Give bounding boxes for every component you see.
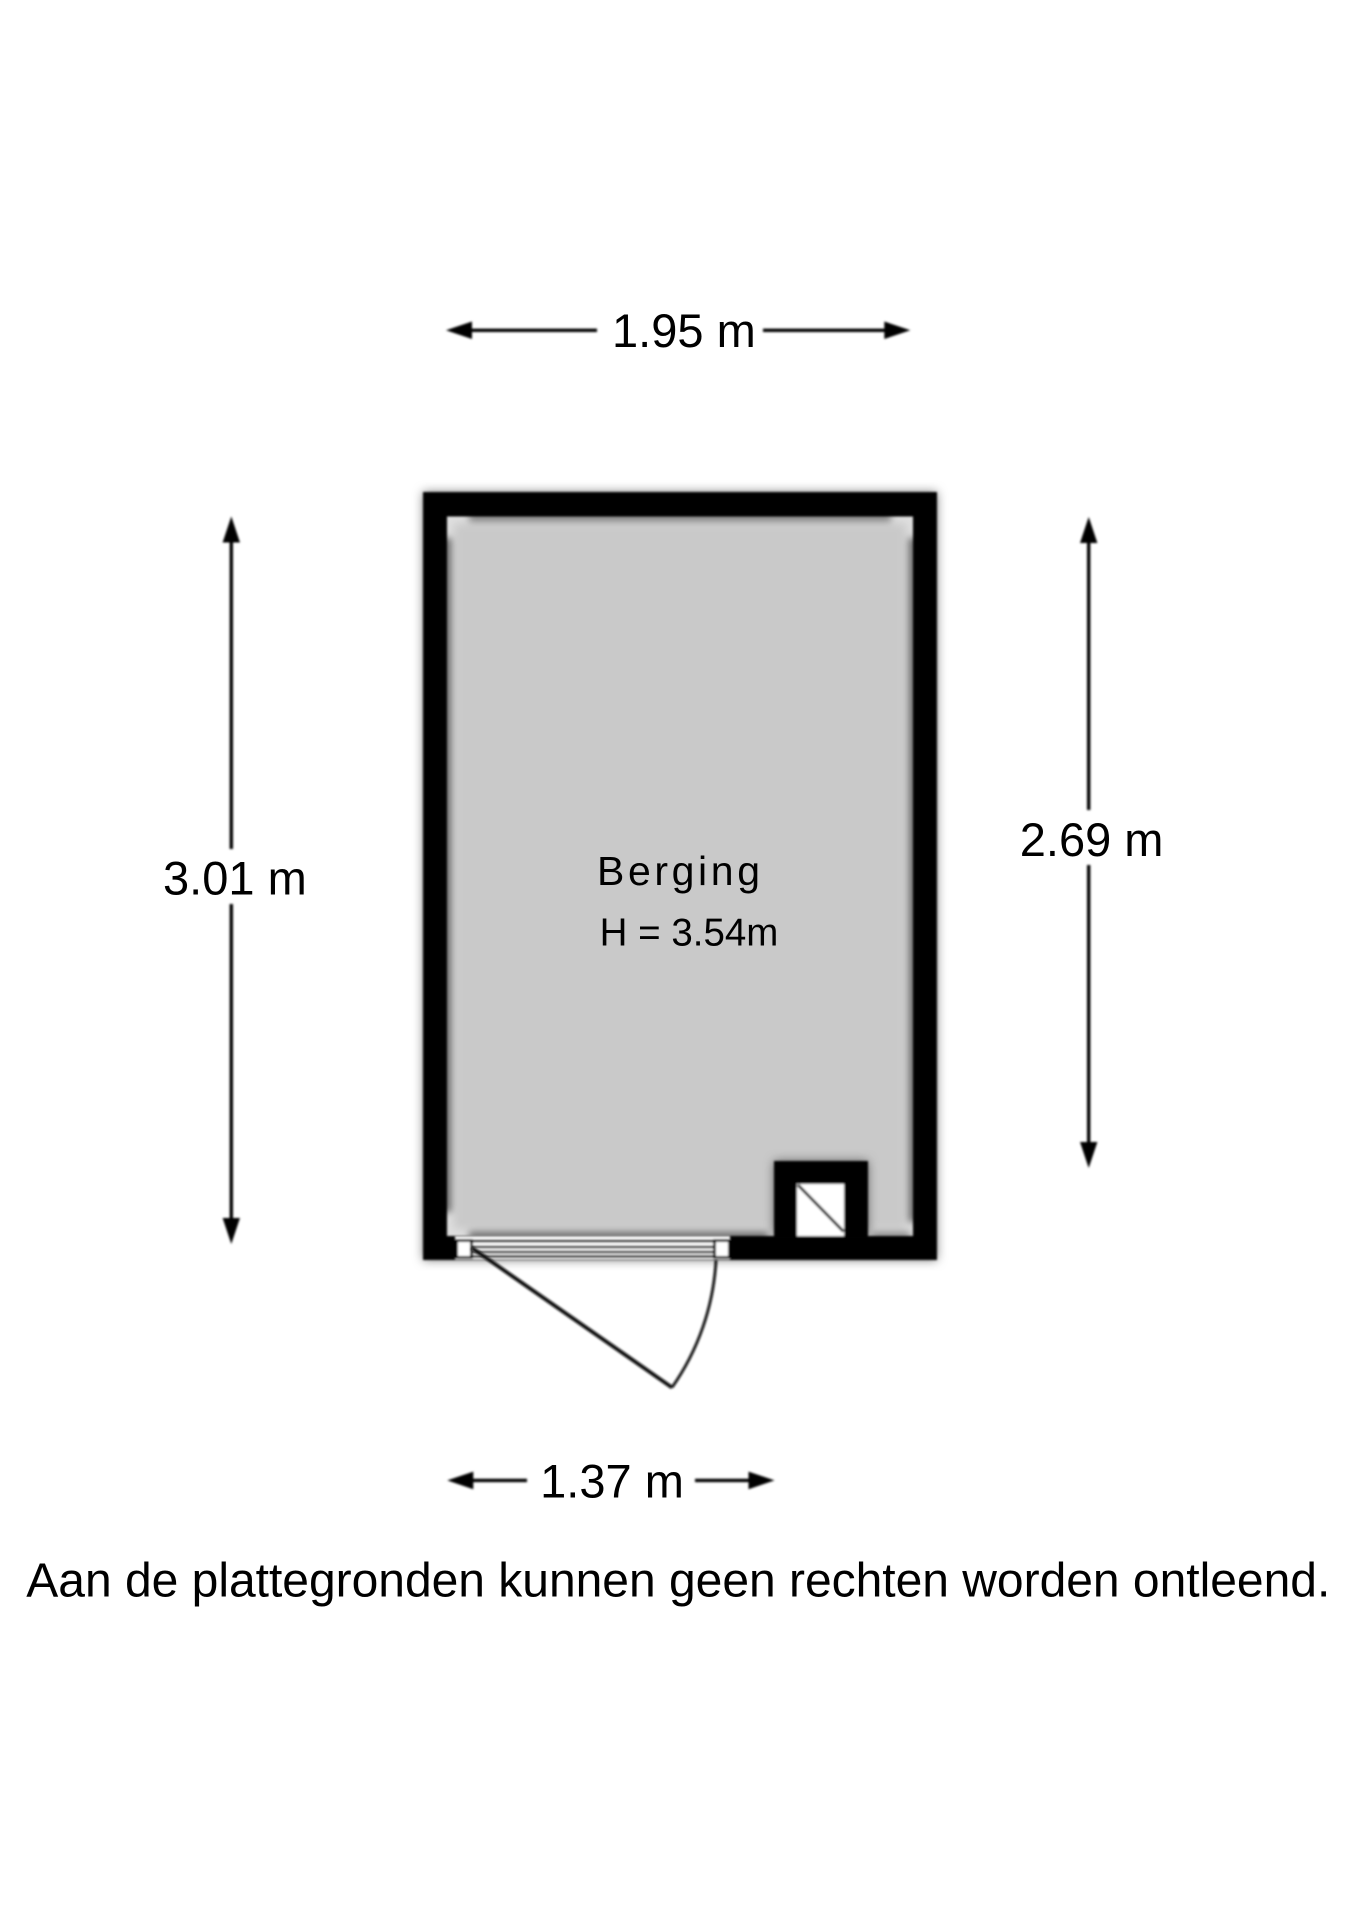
svg-text:3.01 m: 3.01 m xyxy=(163,852,307,905)
svg-text:1.95 m: 1.95 m xyxy=(612,304,756,357)
svg-text:Aan de plattegronden kunnen ge: Aan de plattegronden kunnen geen rechten… xyxy=(26,1554,1330,1607)
svg-text:H = 3.54m: H = 3.54m xyxy=(600,912,779,955)
svg-text:2.69 m: 2.69 m xyxy=(1020,813,1164,866)
svg-text:1.37 m: 1.37 m xyxy=(540,1455,684,1508)
